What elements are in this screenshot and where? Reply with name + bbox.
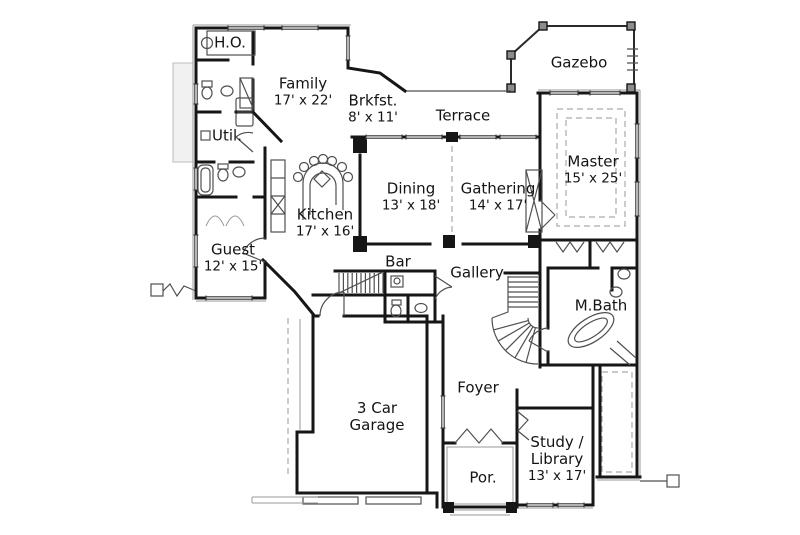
toilet xyxy=(202,87,212,99)
window xyxy=(346,36,351,60)
utility-door xyxy=(236,132,253,152)
floor-plan-drawing xyxy=(0,0,800,535)
back-staircase xyxy=(339,272,383,293)
utility-line-left xyxy=(163,284,196,296)
window xyxy=(194,84,199,104)
gazebo-steps xyxy=(627,49,638,70)
window xyxy=(527,503,553,508)
window xyxy=(635,124,640,158)
window xyxy=(206,296,252,301)
utility-sink xyxy=(201,131,210,140)
window xyxy=(282,26,318,31)
sink xyxy=(618,269,630,279)
stool xyxy=(338,163,347,172)
garage-details xyxy=(252,319,421,504)
gazebo-structure xyxy=(507,22,638,92)
window xyxy=(406,135,442,140)
walls xyxy=(196,28,640,507)
tub xyxy=(198,165,213,195)
stool xyxy=(344,173,353,182)
kitchen-fixtures xyxy=(271,155,353,233)
gazebo-post xyxy=(627,22,635,30)
shower xyxy=(610,341,636,365)
washer xyxy=(236,98,253,111)
column xyxy=(446,132,458,142)
powder-door xyxy=(435,276,452,299)
foyer-entry-doors xyxy=(455,429,503,443)
curved-staircase xyxy=(492,276,538,364)
window xyxy=(228,26,264,31)
master-tray-ceiling-inner xyxy=(566,118,616,217)
porch-post xyxy=(506,502,517,513)
utility-meter-left xyxy=(151,284,163,296)
window xyxy=(550,91,578,96)
utility-meter-right xyxy=(667,475,679,487)
window xyxy=(441,396,446,428)
column xyxy=(443,235,455,248)
sink xyxy=(233,167,245,177)
stoop xyxy=(252,497,318,503)
floor-plan-page: H.O. Family17' x 22' Brkfst.8' x 11' Ter… xyxy=(0,0,800,535)
stool xyxy=(328,157,337,166)
window xyxy=(558,503,584,508)
dryer xyxy=(236,113,253,126)
garage-door xyxy=(366,497,421,504)
study-doors xyxy=(517,411,529,440)
window xyxy=(460,135,496,140)
column xyxy=(353,236,367,252)
stool xyxy=(294,173,303,182)
window xyxy=(635,182,640,216)
toilet xyxy=(218,169,228,181)
stool xyxy=(310,157,319,166)
guest-door xyxy=(243,238,265,262)
column xyxy=(353,137,367,153)
stool xyxy=(319,155,328,164)
home-office-desk xyxy=(202,31,256,55)
master-tray-ceiling-outer xyxy=(557,109,625,226)
tub xyxy=(563,306,620,354)
porch-post xyxy=(443,502,454,513)
window xyxy=(500,135,536,140)
gazebo-post xyxy=(539,22,547,30)
closet-bifold-door xyxy=(596,242,624,252)
closet-bifold-door xyxy=(556,242,584,252)
exterior-pad xyxy=(173,63,193,162)
gazebo-post xyxy=(627,84,635,92)
porch-details xyxy=(443,447,517,515)
window xyxy=(194,235,199,267)
gazebo-walls xyxy=(511,26,634,91)
master-bath-fixtures xyxy=(563,269,636,365)
side-porch-line xyxy=(602,372,632,472)
window xyxy=(366,135,402,140)
column xyxy=(528,235,541,248)
guest-bed xyxy=(206,216,244,226)
sink xyxy=(221,86,233,96)
utility-fixtures xyxy=(201,98,253,140)
hall-bath-fixtures xyxy=(202,78,253,108)
gazebo-post xyxy=(507,51,515,59)
window xyxy=(590,91,620,96)
sink xyxy=(415,304,427,313)
stool xyxy=(300,163,309,172)
guest-bath-fixtures xyxy=(198,164,245,226)
toilet xyxy=(610,287,622,297)
wall-lines xyxy=(196,28,640,507)
